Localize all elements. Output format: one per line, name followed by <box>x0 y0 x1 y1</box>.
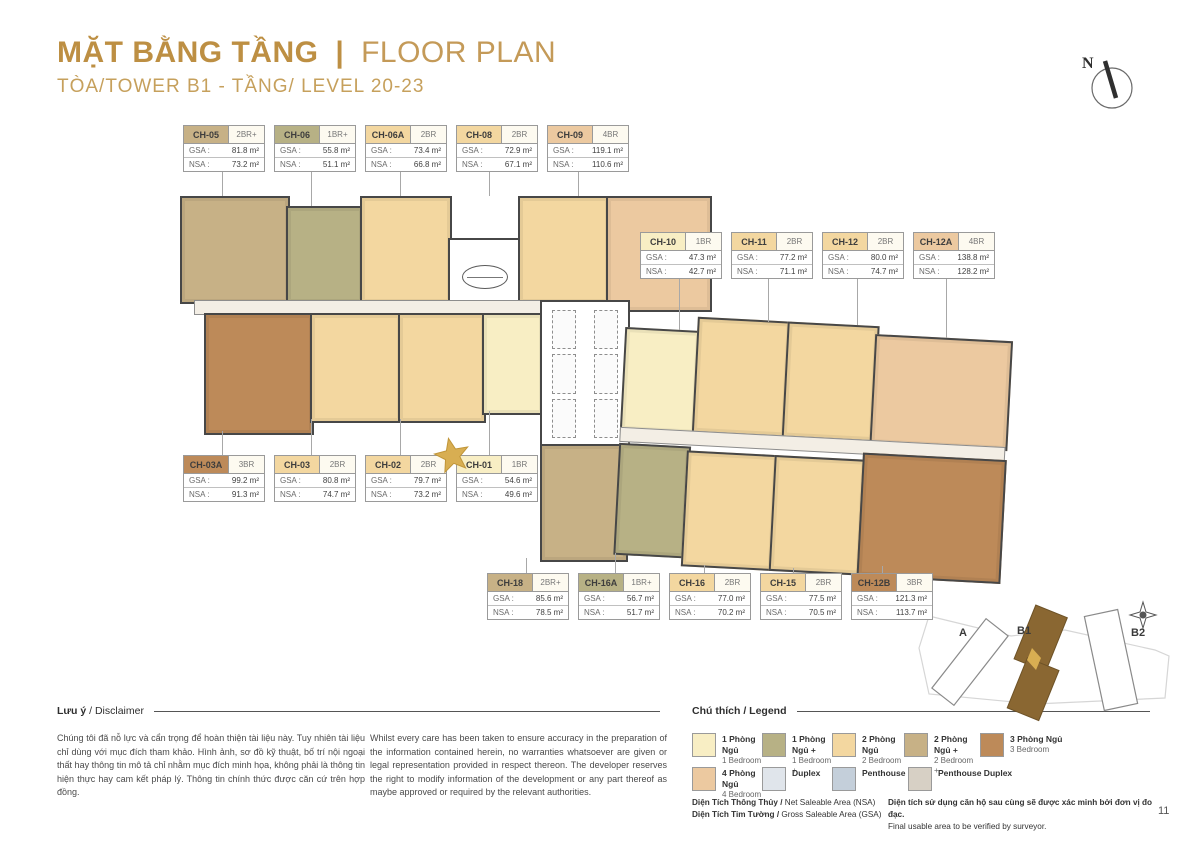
gsa-value: 55.8 m² <box>323 146 350 155</box>
unit-type: 2BR <box>868 233 903 250</box>
unit-label-CH-18: CH-18 2BR+ GSA :85.6 m² NSA :78.5 m² <box>487 573 569 620</box>
nsa-label: NSA : <box>280 490 300 499</box>
nsa-label: NSA : <box>737 267 757 276</box>
unit-type: 2BR <box>715 574 750 591</box>
gsa-value: 81.8 m² <box>232 146 259 155</box>
nsa-label: NSA : <box>919 267 939 276</box>
plan-unit-CH-12B <box>857 453 1007 584</box>
unit-labels-bottom: CH-18 2BR+ GSA :85.6 m² NSA :78.5 m² CH-… <box>487 573 933 620</box>
unit-code: CH-15 <box>761 574 806 591</box>
nsa-label: NSA : <box>675 608 695 617</box>
nsa-label: NSA : <box>646 267 666 276</box>
gsa-value: 72.9 m² <box>505 146 532 155</box>
unit-type: 2BR <box>320 456 355 473</box>
gsa-label: GSA : <box>828 253 849 262</box>
unit-code: CH-12B <box>852 574 897 591</box>
gsa-label: GSA : <box>280 476 301 485</box>
tower-b2-shape <box>1084 610 1137 711</box>
nsa-value: 73.2 m² <box>414 490 441 499</box>
nsa-value: 78.5 m² <box>536 608 563 617</box>
unit-label-CH-08: CH-08 2BR GSA :72.9 m² NSA :67.1 m² <box>456 125 538 172</box>
nsa-value: 70.5 m² <box>809 608 836 617</box>
unit-code: CH-18 <box>488 574 533 591</box>
nsa-label: NSA : <box>189 490 209 499</box>
plan-unit-CH-12A <box>869 334 1013 451</box>
gsa-value: 121.3 m² <box>895 594 927 603</box>
nsa-label: NSA : <box>584 608 604 617</box>
gsa-label: GSA : <box>371 476 392 485</box>
unit-code: CH-16A <box>579 574 624 591</box>
gsa-label: GSA : <box>737 253 758 262</box>
elevator-core <box>540 300 630 448</box>
nsa-value: 91.3 m² <box>232 490 259 499</box>
plan-unit-CH-02 <box>398 313 486 423</box>
unit-label-CH-12: CH-12 2BR GSA :80.0 m² NSA :74.7 m² <box>822 232 904 279</box>
plan-unit-CH-03 <box>310 313 402 423</box>
unit-type: 2BR+ <box>533 574 568 591</box>
unit-label-CH-16A: CH-16A 1BR+ GSA :56.7 m² NSA :51.7 m² <box>578 573 660 620</box>
elevator-bank-icon <box>552 310 618 438</box>
plan-unit-CH-08 <box>518 196 610 304</box>
gsa-value: 99.2 m² <box>232 476 259 485</box>
nsa-value: 74.7 m² <box>323 490 350 499</box>
unit-labels-top: CH-05 2BR+ GSA :81.8 m² NSA :73.2 m² CH-… <box>183 125 629 172</box>
gsa-value: 77.5 m² <box>809 594 836 603</box>
unit-type: 2BR <box>777 233 812 250</box>
nsa-label: NSA : <box>857 608 877 617</box>
nsa-value: 67.1 m² <box>505 160 532 169</box>
unit-code: CH-03 <box>275 456 320 473</box>
unit-code: CH-06 <box>275 126 320 143</box>
unit-code: CH-06A <box>366 126 411 143</box>
gsa-label: GSA : <box>766 594 787 603</box>
unit-code: CH-12A <box>914 233 959 250</box>
unit-labels-right: CH-10 1BR GSA :47.3 m² NSA :42.7 m² CH-1… <box>640 232 995 279</box>
nsa-label: NSA : <box>828 267 848 276</box>
unit-type: 2BR <box>806 574 841 591</box>
nsa-label: NSA : <box>493 608 513 617</box>
gsa-value: 138.8 m² <box>957 253 989 262</box>
gsa-value: 80.0 m² <box>871 253 898 262</box>
nsa-value: 113.7 m² <box>896 608 927 617</box>
nsa-value: 49.6 m² <box>505 490 532 499</box>
nsa-label: NSA : <box>189 160 209 169</box>
right-wing <box>613 313 1010 583</box>
gsa-value: 54.6 m² <box>505 476 532 485</box>
nsa-label: NSA : <box>371 160 391 169</box>
unit-type: 2BR <box>411 126 446 143</box>
unit-label-CH-15: CH-15 2BR GSA :77.5 m² NSA :70.5 m² <box>760 573 842 620</box>
unit-type: 1BR+ <box>624 574 659 591</box>
unit-label-CH-12B: CH-12B 3BR GSA :121.3 m² NSA :113.7 m² <box>851 573 933 620</box>
unit-type: 1BR <box>502 456 537 473</box>
tower-a-label: A <box>959 627 967 639</box>
nsa-label: NSA : <box>371 490 391 499</box>
unit-label-CH-03A: CH-03A 3BR GSA :99.2 m² NSA :91.3 m² <box>183 455 265 502</box>
unit-type: 4BR <box>959 233 994 250</box>
plan-unit-CH-16A <box>613 443 691 559</box>
nsa-value: 74.7 m² <box>871 267 898 276</box>
unit-type: 4BR <box>593 126 628 143</box>
plan-unit-CH-12 <box>782 321 880 442</box>
site-key-map: A B1 B2 <box>915 596 1187 722</box>
gsa-label: GSA : <box>919 253 940 262</box>
gsa-value: 80.8 m² <box>323 476 350 485</box>
tower-b1-label: B1 <box>1017 625 1031 637</box>
gsa-label: GSA : <box>675 594 696 603</box>
highlight-star-icon <box>433 436 471 474</box>
gsa-label: GSA : <box>493 594 514 603</box>
plan-unit-CH-06 <box>286 206 364 304</box>
gsa-value: 79.7 m² <box>414 476 441 485</box>
plan-unit-CH-03A <box>204 313 314 435</box>
gsa-value: 77.2 m² <box>780 253 807 262</box>
nsa-value: 42.7 m² <box>689 267 716 276</box>
floor-plan-page: MẶT BẰNG TẦNG | FLOOR PLAN TÒA/TOWER B1 … <box>0 0 1200 848</box>
nsa-value: 71.1 m² <box>780 267 807 276</box>
compass-sparkle-icon <box>1130 602 1156 628</box>
unit-type: 1BR <box>686 233 721 250</box>
gsa-label: GSA : <box>462 146 483 155</box>
unit-code: CH-05 <box>184 126 229 143</box>
nsa-label: NSA : <box>462 160 482 169</box>
unit-type: 1BR+ <box>320 126 355 143</box>
unit-label-CH-06A: CH-06A 2BR GSA :73.4 m² NSA :66.8 m² <box>365 125 447 172</box>
unit-label-CH-09: CH-09 4BR GSA :119.1 m² NSA :110.6 m² <box>547 125 629 172</box>
unit-labels-middle: CH-03A 3BR GSA :99.2 m² NSA :91.3 m² CH-… <box>183 455 538 502</box>
plan-unit-CH-15 <box>769 455 867 576</box>
unit-code: CH-11 <box>732 233 777 250</box>
unit-label-CH-05: CH-05 2BR+ GSA :81.8 m² NSA :73.2 m² <box>183 125 265 172</box>
gsa-label: GSA : <box>189 476 210 485</box>
unit-type: 2BR <box>502 126 537 143</box>
plan-unit-CH-06A <box>360 196 452 304</box>
unit-label-CH-03: CH-03 2BR GSA :80.8 m² NSA :74.7 m² <box>274 455 356 502</box>
unit-label-CH-10: CH-10 1BR GSA :47.3 m² NSA :42.7 m² <box>640 232 722 279</box>
nsa-label: NSA : <box>462 490 482 499</box>
nsa-value: 110.6 m² <box>592 160 623 169</box>
unit-code: CH-16 <box>670 574 715 591</box>
unit-label-CH-16: CH-16 2BR GSA :77.0 m² NSA :70.2 m² <box>669 573 751 620</box>
plan-unit-CH-10 <box>620 327 701 435</box>
plan-unit-CH-16 <box>681 450 779 571</box>
plan-unit-CH-05 <box>180 196 290 304</box>
nsa-value: 51.7 m² <box>627 608 654 617</box>
gsa-label: GSA : <box>857 594 878 603</box>
gsa-label: GSA : <box>646 253 667 262</box>
tower-a-shape <box>932 619 1008 706</box>
gsa-label: GSA : <box>280 146 301 155</box>
nsa-value: 51.1 m² <box>323 160 350 169</box>
staircase-icon <box>462 265 508 289</box>
nsa-value: 66.8 m² <box>414 160 441 169</box>
unit-code: CH-09 <box>548 126 593 143</box>
nsa-label: NSA : <box>280 160 300 169</box>
nsa-label: NSA : <box>553 160 573 169</box>
gsa-value: 73.4 m² <box>414 146 441 155</box>
gsa-label: GSA : <box>371 146 392 155</box>
unit-type: 3BR <box>897 574 932 591</box>
unit-type: 2BR+ <box>229 126 264 143</box>
unit-code: CH-03A <box>184 456 229 473</box>
unit-label-CH-12A: CH-12A 4BR GSA :138.8 m² NSA :128.2 m² <box>913 232 995 279</box>
gsa-value: 77.0 m² <box>718 594 745 603</box>
unit-code: CH-02 <box>366 456 411 473</box>
nsa-value: 73.2 m² <box>232 160 259 169</box>
gsa-label: GSA : <box>584 594 605 603</box>
unit-label-CH-06: CH-06 1BR+ GSA :55.8 m² NSA :51.1 m² <box>274 125 356 172</box>
plan-unit-CH-01 <box>482 313 544 415</box>
gsa-label: GSA : <box>553 146 574 155</box>
unit-code: CH-10 <box>641 233 686 250</box>
unit-code: CH-12 <box>823 233 868 250</box>
unit-label-CH-11: CH-11 2BR GSA :77.2 m² NSA :71.1 m² <box>731 232 813 279</box>
gsa-value: 56.7 m² <box>627 594 654 603</box>
unit-type: 3BR <box>229 456 264 473</box>
nsa-value: 128.2 m² <box>957 267 989 276</box>
plan-unit-CH-11 <box>692 317 792 438</box>
nsa-value: 70.2 m² <box>718 608 745 617</box>
gsa-label: GSA : <box>462 476 483 485</box>
gsa-label: GSA : <box>189 146 210 155</box>
gsa-value: 119.1 m² <box>592 146 623 155</box>
unit-code: CH-08 <box>457 126 502 143</box>
gsa-value: 47.3 m² <box>689 253 716 262</box>
gsa-value: 85.6 m² <box>536 594 563 603</box>
nsa-label: NSA : <box>766 608 786 617</box>
